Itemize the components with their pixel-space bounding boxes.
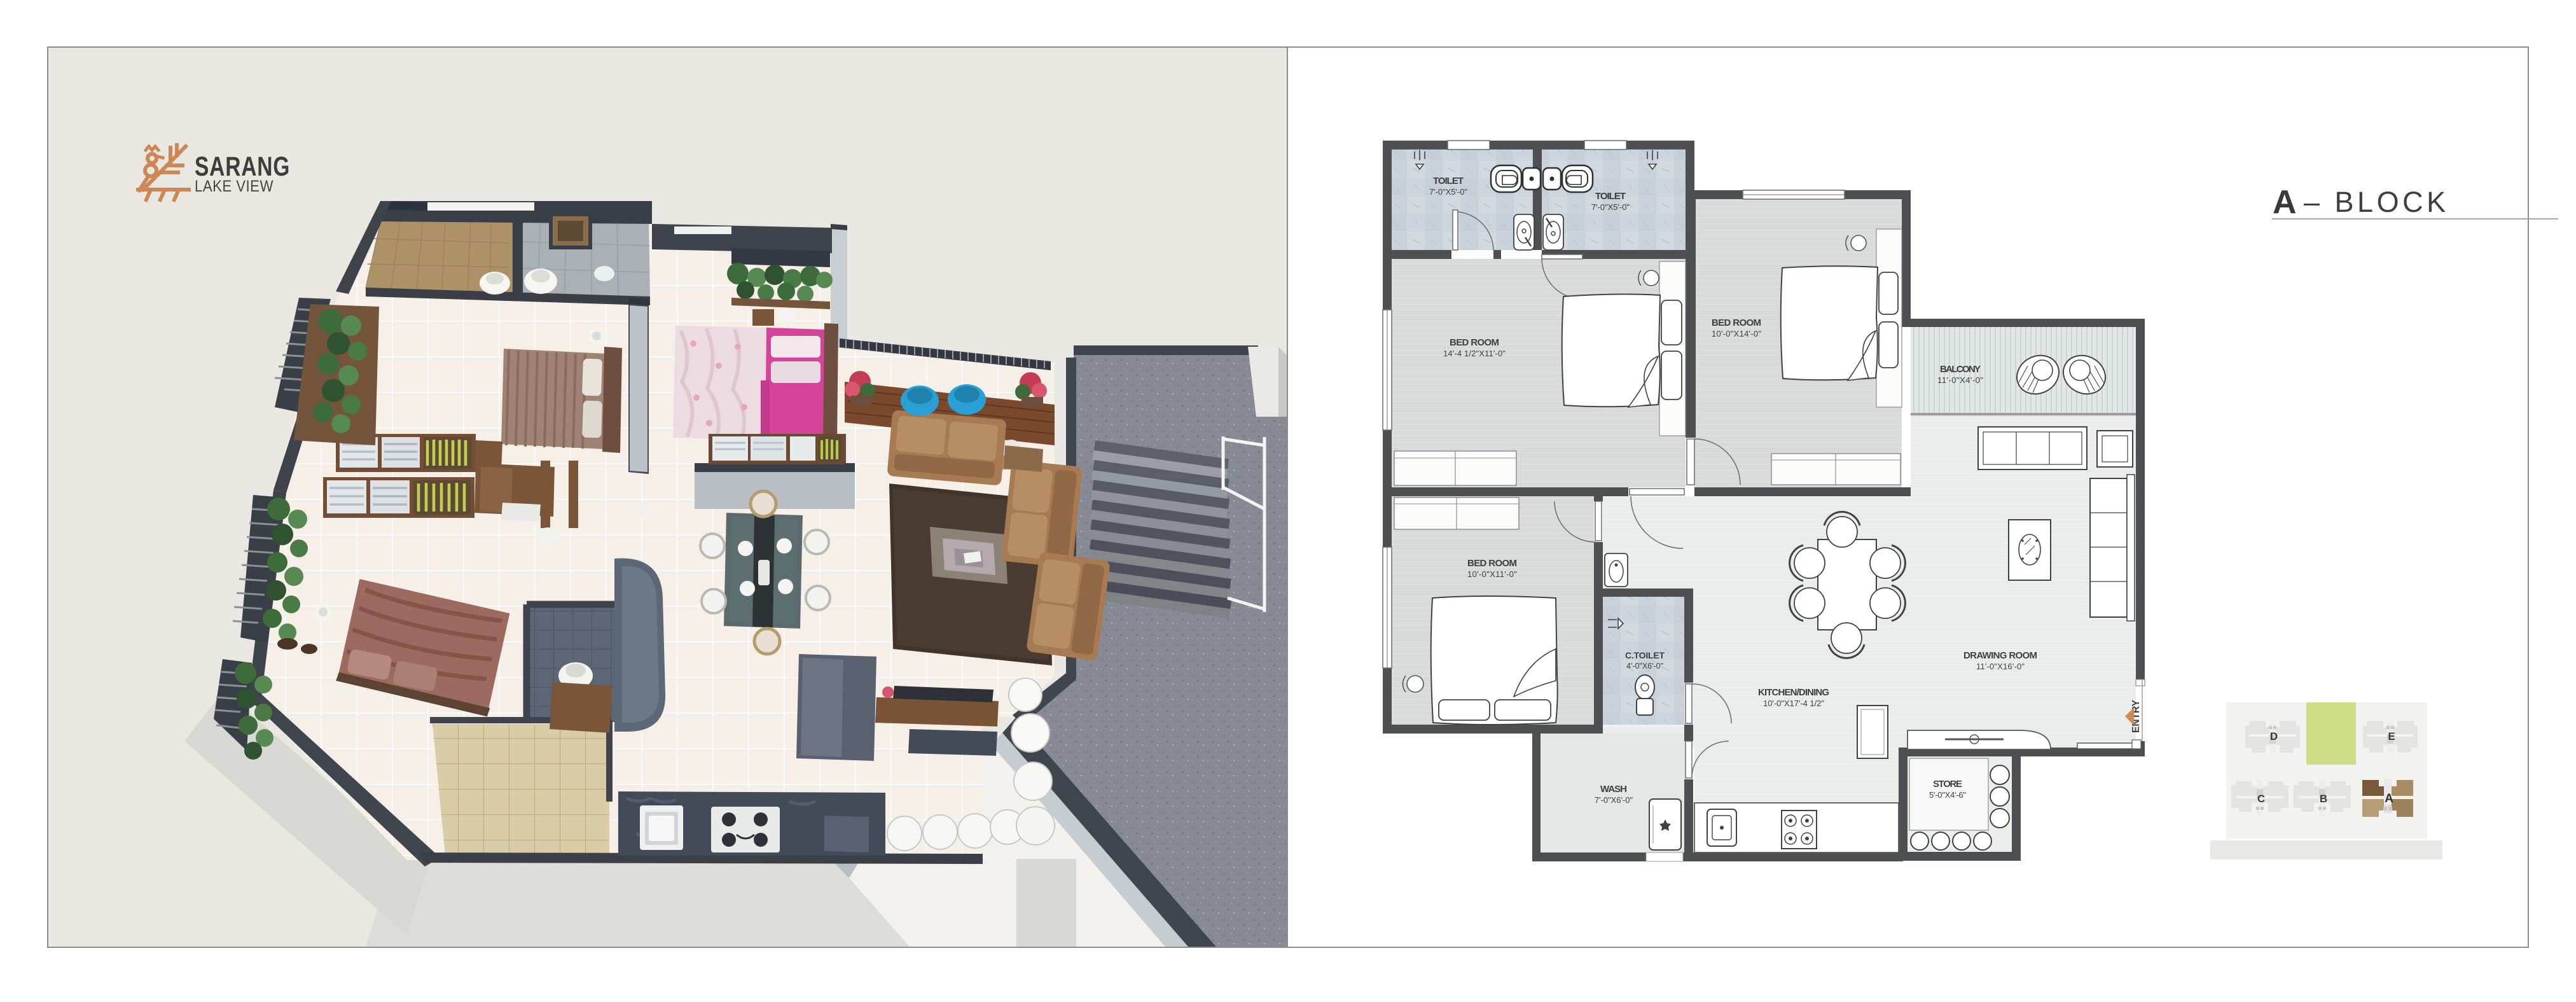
- svg-text:TOILET: TOILET: [1433, 176, 1464, 186]
- svg-text:10'-0"X11'-0": 10'-0"X11'-0": [1467, 569, 1517, 579]
- svg-text:11'-0"X16'-0": 11'-0"X16'-0": [1976, 662, 2025, 671]
- svg-text:11'-0"X4'-0": 11'-0"X4'-0": [1937, 375, 1983, 385]
- svg-text:10'-0"X17'-4 1/2": 10'-0"X17'-4 1/2": [1763, 699, 1824, 708]
- svg-text:C: C: [2257, 793, 2265, 805]
- svg-text:7'-0"X6'-0": 7'-0"X6'-0": [1595, 795, 1633, 805]
- svg-text:E: E: [2388, 730, 2395, 742]
- svg-text:TOILET: TOILET: [1595, 191, 1626, 202]
- svg-text:LAKE VIEW: LAKE VIEW: [195, 178, 274, 195]
- svg-text:BED ROOM: BED ROOM: [1450, 337, 1499, 348]
- svg-text:5'-0"X4'-6": 5'-0"X4'-6": [1929, 790, 1966, 800]
- svg-text:STORE: STORE: [1933, 779, 1962, 790]
- svg-text:KITCHEN/DINING: KITCHEN/DINING: [1758, 687, 1829, 698]
- svg-text:BALCONY: BALCONY: [1940, 364, 1981, 375]
- svg-text:A: A: [2273, 184, 2298, 221]
- svg-text:C.TOILET: C.TOILET: [1625, 650, 1665, 660]
- svg-text:7'-0"X5'-0": 7'-0"X5'-0": [1591, 202, 1630, 212]
- svg-text:– BLOCK: – BLOCK: [2304, 186, 2449, 218]
- svg-text:BED ROOM: BED ROOM: [1467, 558, 1517, 569]
- svg-text:14'-4 1/2"X11'-0": 14'-4 1/2"X11'-0": [1443, 349, 1506, 358]
- svg-text:BED ROOM: BED ROOM: [1712, 317, 1761, 328]
- svg-text:A: A: [2385, 792, 2393, 805]
- svg-text:WASH: WASH: [1600, 784, 1627, 795]
- svg-text:D: D: [2270, 730, 2278, 742]
- svg-text:B: B: [2320, 793, 2327, 805]
- svg-text:4'-0"X6'-0": 4'-0"X6'-0": [1626, 662, 1663, 671]
- svg-text:10'-0"X14'-0": 10'-0"X14'-0": [1712, 329, 1761, 338]
- svg-text:7'-0"X5'-0": 7'-0"X5'-0": [1429, 187, 1467, 197]
- svg-text:DRAWING ROOM: DRAWING ROOM: [1963, 650, 2037, 661]
- svg-text:SARANG: SARANG: [195, 151, 290, 182]
